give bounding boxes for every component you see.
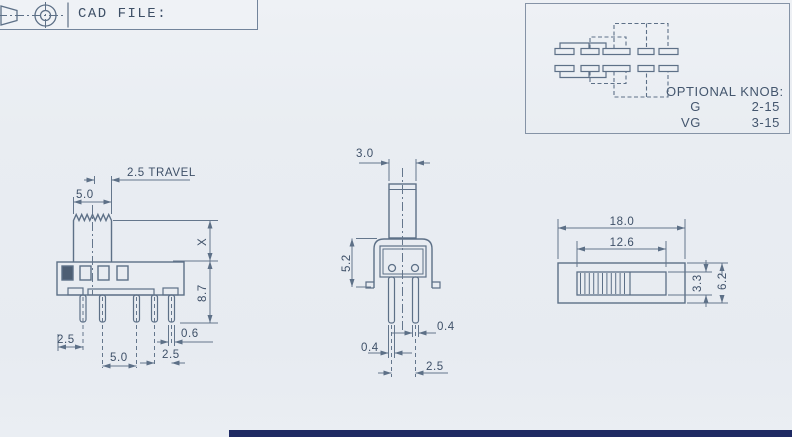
dim-slot-width: 3.3 — [692, 274, 704, 292]
catalog-page: CAD FILE: OPTIONAL KNOB: G 2-15 VG 3-15 — [0, 0, 792, 437]
dim-overall-length: 18.0 — [610, 216, 635, 228]
dim-pin-thickness-right: 0.4 — [437, 321, 455, 333]
dim-pin-offset-left: 2.5 — [57, 334, 75, 346]
dim-pin-thickness-left: 0.4 — [361, 342, 379, 354]
side-body — [57, 262, 184, 295]
dim-slot-length: 12.6 — [610, 237, 635, 249]
dim-pin-width: 0.6 — [181, 328, 199, 340]
technical-drawing: 2.5 TRAVEL 5.0 X 8.7 2.5 5.0 2.5 0.6 — [0, 0, 792, 437]
top-slot — [577, 272, 666, 295]
dim-body-width: 6.2 — [717, 272, 729, 290]
dim-pin-span-center: 5.0 — [110, 352, 128, 364]
dim-pin-spacing: 2.5 — [426, 361, 444, 373]
schematic-terminals-top — [555, 49, 678, 55]
top-dimension-labels: 18.0 12.6 3.3 6.2 — [610, 216, 729, 292]
dim-travel: 2.5 TRAVEL — [127, 167, 196, 179]
side-view: 2.5 TRAVEL 5.0 X 8.7 2.5 5.0 2.5 0.6 — [57, 167, 218, 368]
dim-knob-width: 3.0 — [356, 148, 374, 160]
third-angle-projection-icon — [0, 2, 68, 29]
side-knob — [74, 215, 112, 263]
dim-knob-width: 5.0 — [76, 189, 94, 201]
bottom-scan-bar — [229, 430, 792, 437]
front-dimension-labels: 3.0 5.2 0.4 0.4 2.5 — [341, 148, 455, 373]
dim-pin-span-right: 2.5 — [162, 349, 180, 361]
circuit-diagram — [555, 24, 678, 98]
schematic-terminals-bottom — [555, 66, 678, 72]
front-pins — [389, 277, 419, 323]
dim-body-height: 5.2 — [341, 254, 353, 272]
dim-knob-height: X — [197, 238, 209, 246]
top-view: 18.0 12.6 3.3 6.2 — [558, 216, 729, 307]
front-view: 3.0 5.2 0.4 0.4 2.5 — [341, 148, 455, 377]
top-knob-hatch — [581, 273, 625, 294]
side-pins — [80, 295, 175, 322]
dim-body-height: 8.7 — [197, 284, 209, 302]
